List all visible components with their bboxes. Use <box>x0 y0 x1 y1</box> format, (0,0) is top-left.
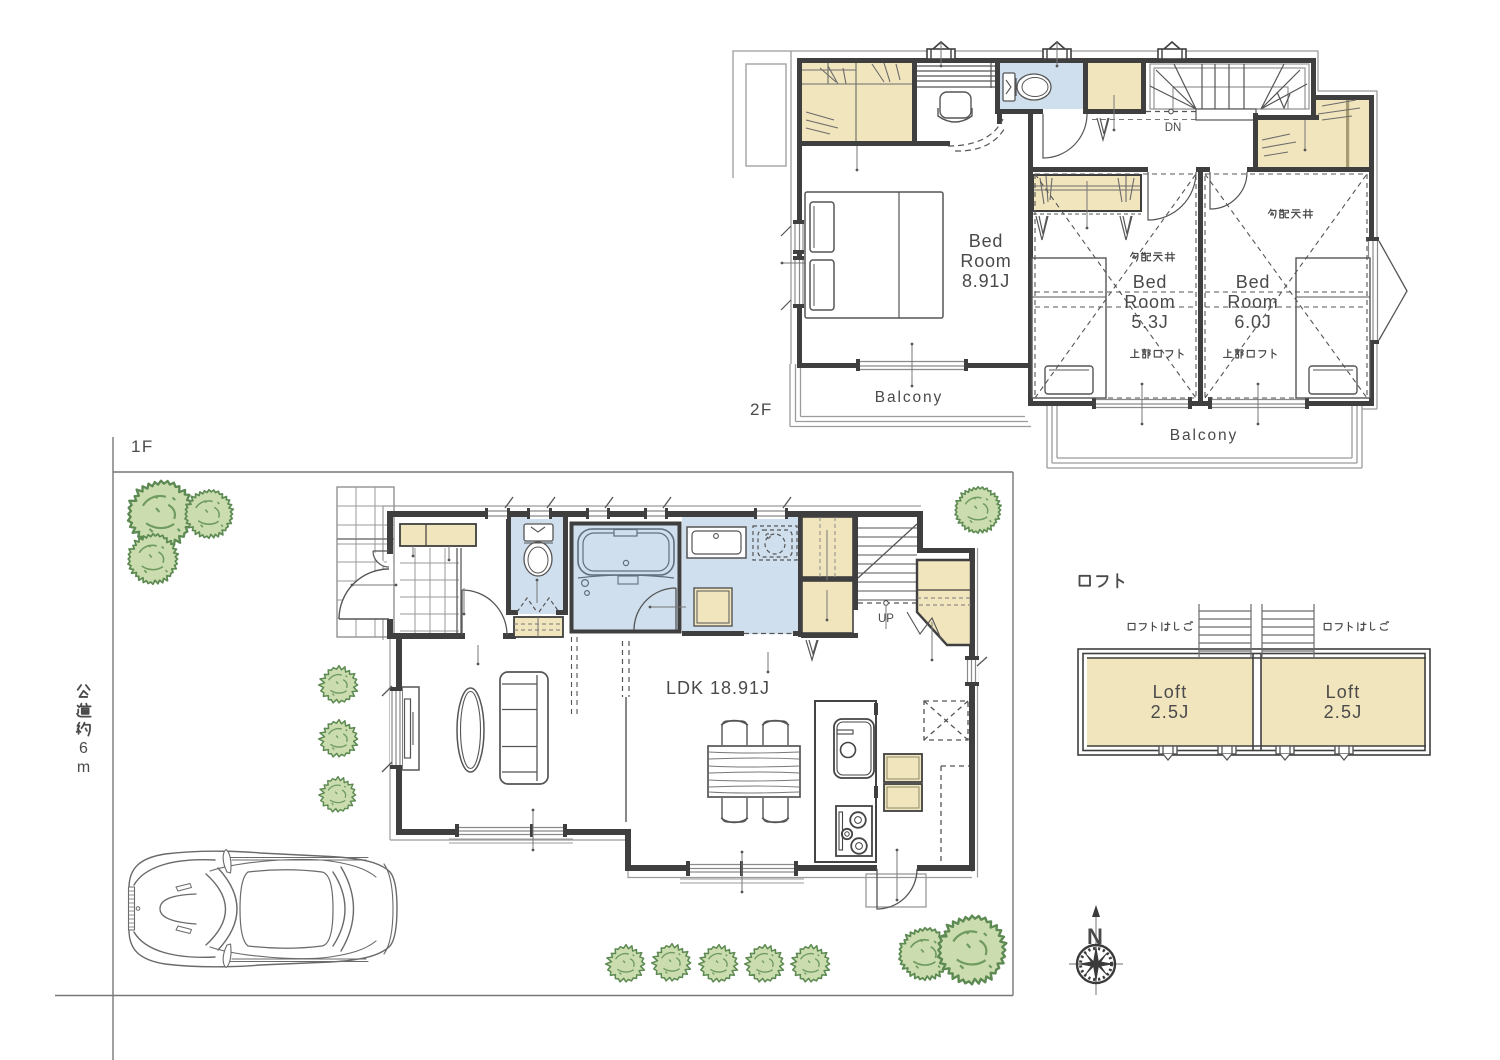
svg-text:Room: Room <box>960 251 1011 271</box>
svg-text:8.91J: 8.91J <box>962 271 1010 291</box>
svg-text:6.0J: 6.0J <box>1234 312 1271 332</box>
svg-text:Bed: Bed <box>969 231 1003 251</box>
svg-text:LDK 18.91J: LDK 18.91J <box>666 678 770 698</box>
svg-text:Room: Room <box>1227 292 1278 312</box>
svg-text:2F: 2F <box>750 400 773 419</box>
svg-text:Loft: Loft <box>1153 682 1188 702</box>
svg-text:2.5J: 2.5J <box>1324 702 1363 722</box>
svg-text:Room: Room <box>1124 292 1175 312</box>
svg-text:N: N <box>1087 924 1103 949</box>
svg-text:Balcony: Balcony <box>875 389 943 406</box>
svg-text:Bed: Bed <box>1236 272 1270 292</box>
svg-text:DN: DN <box>1165 122 1182 134</box>
svg-text:2.5J: 2.5J <box>1151 702 1190 722</box>
svg-text:UP: UP <box>878 613 894 625</box>
svg-text:1F: 1F <box>131 437 154 456</box>
svg-text:6: 6 <box>79 740 88 757</box>
svg-text:Loft: Loft <box>1326 682 1361 702</box>
svg-text:m: m <box>77 759 90 776</box>
svg-text:5.3J: 5.3J <box>1131 312 1168 332</box>
svg-text:Bed: Bed <box>1133 272 1167 292</box>
svg-text:Balcony: Balcony <box>1170 427 1238 444</box>
